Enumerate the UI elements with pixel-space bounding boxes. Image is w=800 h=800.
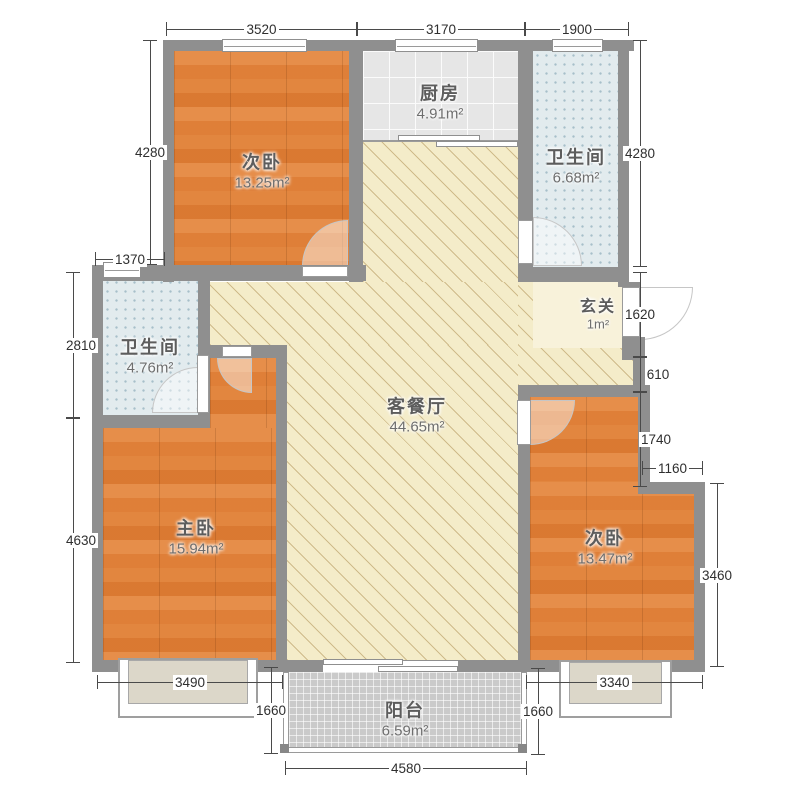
room-label-bedroom-br: 次卧 13.47m² <box>577 525 632 568</box>
room-area: 13.25m² <box>234 175 289 192</box>
dim-label: 3520 <box>244 22 278 37</box>
dim-left-2810: 2810 <box>66 272 80 418</box>
floor-plan-canvas: 次卧 13.25m² 厨房 4.91m² 卫生间 6.68m² 玄关 1m² 卫… <box>0 0 800 800</box>
dim-left-4630: 4630 <box>66 418 80 663</box>
dim-bottom-3340: 3340 <box>526 675 703 689</box>
wall-right-upper <box>618 40 629 287</box>
room-label-balcony: 阳台 6.59m² <box>382 697 429 740</box>
dim-bottom-4580: 4580 <box>285 761 527 775</box>
room-label-bath-top-right: 卫生间 6.68m² <box>546 144 606 187</box>
dim-label: 1160 <box>656 461 689 476</box>
room-label-kitchen: 厨房 4.91m² <box>417 80 464 123</box>
room-label-bath-left: 卫生间 4.76m² <box>120 334 180 377</box>
dim-top-3170: 3170 <box>357 22 525 36</box>
wall-bath-left-bottom <box>92 415 210 428</box>
room-name: 次卧 <box>234 149 289 175</box>
window-kitchen <box>395 39 478 52</box>
sliding-door-balcony-a <box>323 659 403 665</box>
floor-living-a <box>363 141 518 282</box>
room-name: 阳台 <box>382 697 429 723</box>
dim-label: 4280 <box>623 146 657 161</box>
room-label-living-dining: 客餐厅 44.65m² <box>387 393 447 436</box>
door-bedroom-br <box>517 400 531 445</box>
door-bath-left <box>197 355 209 413</box>
room-area: 1m² <box>580 317 616 332</box>
dim-label: 3490 <box>173 675 207 690</box>
door-bedroom-top-left <box>302 266 348 277</box>
dim-right-3460: 3460 <box>710 483 724 667</box>
room-name: 玄关 <box>580 293 616 317</box>
dim-label: 610 <box>645 367 672 382</box>
room-name: 卫生间 <box>120 334 180 360</box>
room-area: 15.94m² <box>168 541 223 558</box>
room-area: 44.65m² <box>387 419 447 436</box>
room-label-entry: 玄关 1m² <box>580 293 616 332</box>
balcony-post-left <box>280 744 289 753</box>
dim-label: 1900 <box>560 22 594 37</box>
dim-right-1620: 1620 <box>633 272 647 357</box>
dim-bottom-3490: 3490 <box>97 675 283 689</box>
dim-label: 4280 <box>133 145 167 160</box>
dim-label: 3340 <box>597 675 631 690</box>
dim-left-4280: 4280 <box>143 40 157 265</box>
door-bath-top-right <box>518 220 533 264</box>
dim-label: 4580 <box>389 761 423 776</box>
dim-left-1370: 1370 <box>95 252 165 266</box>
wall-bath2-bottom <box>518 267 629 282</box>
dim-right-1160: 1160 <box>642 461 703 475</box>
wall-master-right <box>276 345 287 672</box>
dim-label: 2810 <box>64 338 98 353</box>
dim-label: 3460 <box>700 568 734 583</box>
wall-left-lower <box>92 265 103 672</box>
dim-label: 1620 <box>623 307 657 322</box>
dim-label: 3170 <box>424 22 458 37</box>
floor-bedroom-br-b <box>530 482 694 660</box>
room-name: 客餐厅 <box>387 393 447 419</box>
room-area: 6.68m² <box>546 170 606 187</box>
floor-living-b <box>210 282 518 345</box>
room-label-master: 主卧 15.94m² <box>168 515 223 558</box>
room-label-bedroom-top-left: 次卧 13.25m² <box>234 149 289 192</box>
dim-label: 1740 <box>639 432 673 447</box>
room-name: 主卧 <box>168 515 223 541</box>
room-area: 4.76m² <box>120 360 180 377</box>
balcony-wall-bottom <box>283 747 527 753</box>
window-bath-top-right <box>552 39 603 52</box>
dim-top-1900: 1900 <box>525 22 629 36</box>
room-name: 卫生间 <box>546 144 606 170</box>
wall-bedroom1-right <box>349 40 363 282</box>
door-master <box>222 346 252 357</box>
balcony-post-right <box>518 744 527 753</box>
room-area: 4.91m² <box>417 106 464 123</box>
dim-label: 1660 <box>254 703 288 718</box>
room-area: 13.47m² <box>577 551 632 568</box>
dim-right-610: 610 <box>633 357 647 392</box>
dim-label: 1370 <box>113 252 147 267</box>
wall-bedroom-br-top <box>518 385 650 397</box>
wall-left-upper <box>163 40 174 282</box>
sliding-door-kitchen-b <box>436 141 518 147</box>
sliding-door-balcony-b <box>378 666 458 672</box>
dim-top-3520: 3520 <box>166 22 357 36</box>
dim-bottom-1660-left: 1660 <box>264 667 278 754</box>
room-area: 6.59m² <box>382 723 429 740</box>
window-bedroom-top-left <box>222 39 307 52</box>
dim-label: 4630 <box>64 533 98 548</box>
dim-right-4280: 4280 <box>633 40 647 267</box>
dim-label: 1660 <box>521 704 555 719</box>
room-name: 次卧 <box>577 525 632 551</box>
room-name: 厨房 <box>417 80 464 106</box>
